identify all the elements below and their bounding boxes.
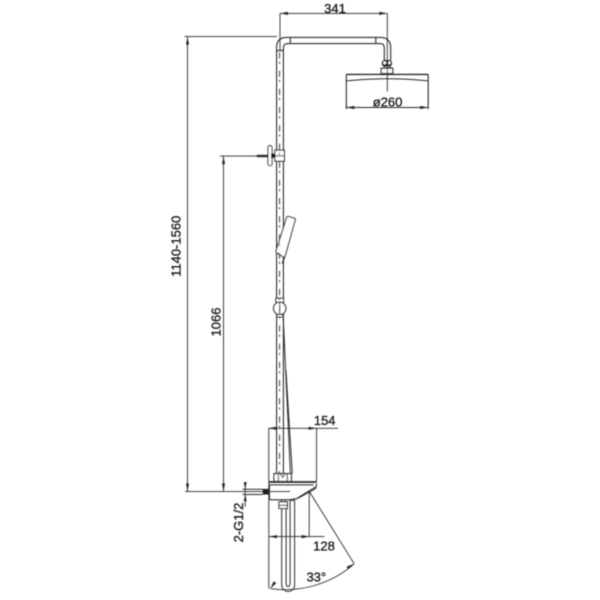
svg-text:ø260: ø260	[373, 94, 403, 109]
svg-text:154: 154	[314, 413, 336, 428]
svg-text:33°: 33°	[306, 570, 326, 585]
svg-text:341: 341	[324, 1, 346, 16]
svg-text:128: 128	[313, 539, 335, 554]
svg-text:2-G1/2: 2-G1/2	[231, 503, 246, 543]
svg-text:1066: 1066	[208, 308, 223, 337]
svg-text:1140-1560: 1140-1560	[168, 216, 183, 277]
